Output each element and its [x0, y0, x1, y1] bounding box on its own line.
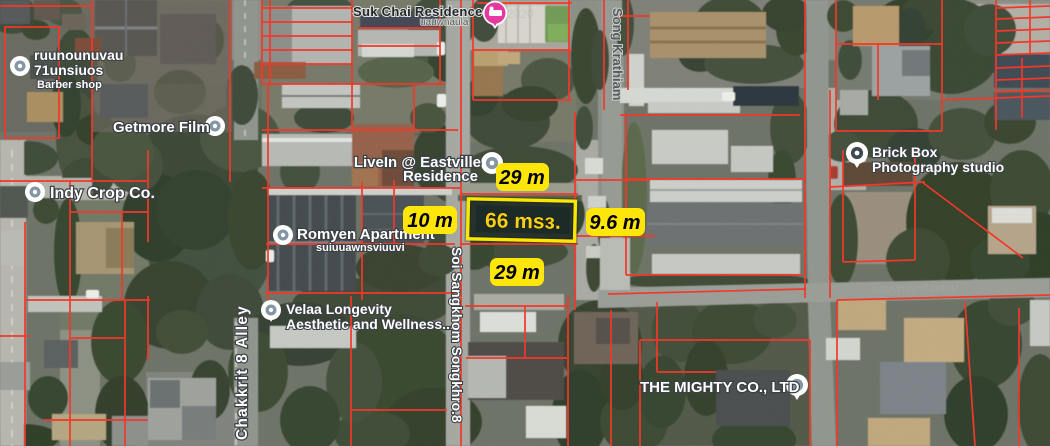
- svg-text:Soi Sangkhom Songkhro.8: Soi Sangkhom Songkhro.8: [449, 247, 464, 423]
- svg-text:71unsiuos: 71unsiuos: [34, 62, 103, 78]
- svg-text:66 msз.: 66 msз.: [485, 209, 561, 234]
- svg-text:suiuuawnsviuuvi: suiuuawnsviuuvi: [316, 242, 405, 254]
- svg-text:Chakkrit 8 Alley: Chakkrit 8 Alley: [234, 305, 251, 440]
- svg-text:aaovnsvnszinuu: aaovnsvnszinuu: [872, 280, 958, 296]
- svg-text:THE MIGHTY CO., LTD: THE MIGHTY CO., LTD: [640, 379, 800, 396]
- svg-text:Song Krathiam: Song Krathiam: [610, 8, 625, 100]
- svg-text:Barber shop: Barber shop: [37, 79, 102, 91]
- svg-text:uauwnaula: uauwnaula: [420, 17, 469, 28]
- svg-text:29 m: 29 m: [498, 167, 545, 189]
- svg-text:Getmore Film: Getmore Film: [113, 119, 210, 136]
- svg-text:Photography studio: Photography studio: [872, 159, 1004, 175]
- svg-text:2020: 2020: [507, 7, 534, 21]
- svg-text:Velaa Longevity: Velaa Longevity: [286, 301, 392, 317]
- svg-text:Aesthetic and Wellness...: Aesthetic and Wellness...: [286, 316, 454, 332]
- svg-text:ruunounuvau: ruunounuvau: [34, 47, 123, 63]
- svg-text:Brick Box: Brick Box: [872, 144, 938, 160]
- svg-text:29 m: 29 m: [493, 262, 540, 284]
- svg-text:9.6 m: 9.6 m: [589, 212, 640, 234]
- svg-text:10 m: 10 m: [407, 210, 453, 232]
- svg-text:Indy Crop Co.: Indy Crop Co.: [50, 185, 155, 202]
- svg-text:Residence: Residence: [403, 168, 478, 185]
